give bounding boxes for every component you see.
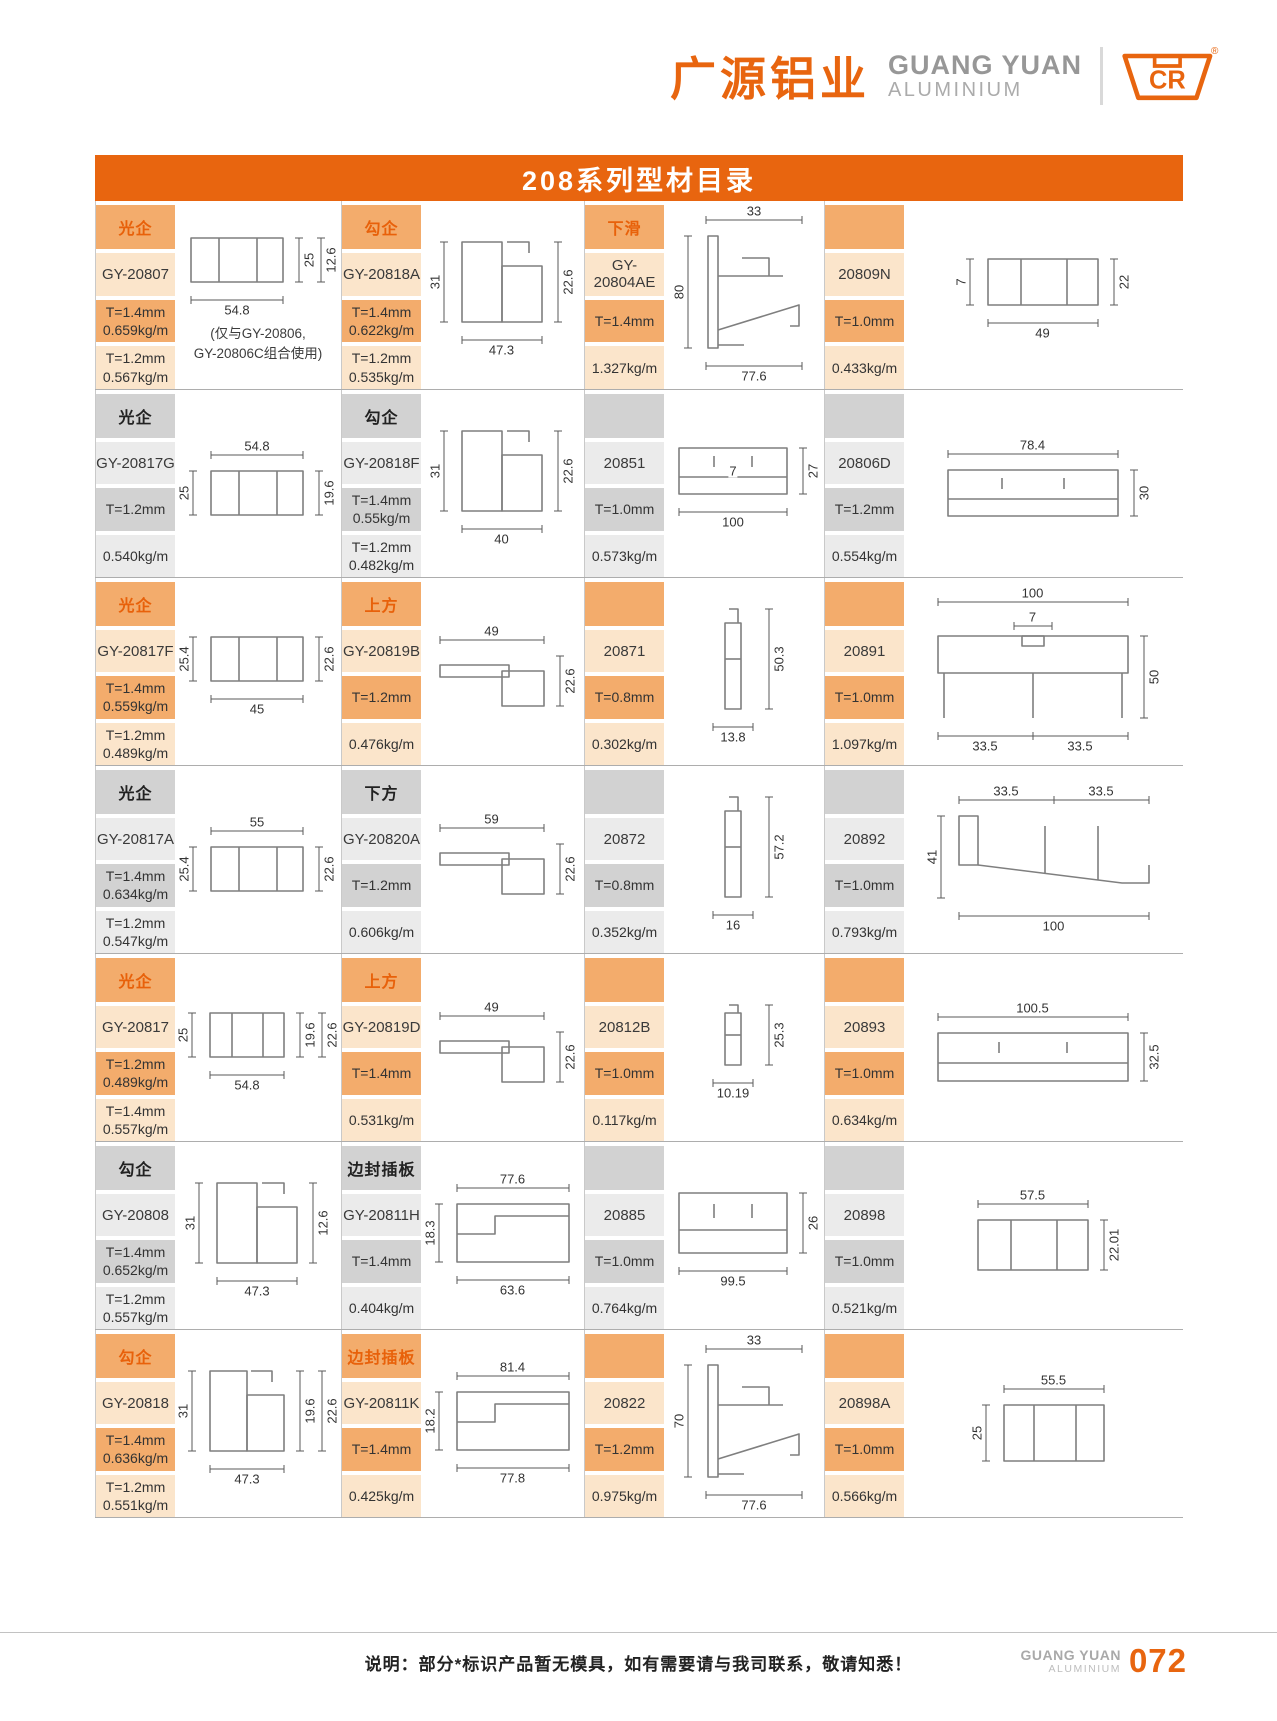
brand-english-name: GUANG YUAN ALUMINIUM (888, 51, 1082, 102)
dimension-label: 41 (925, 848, 938, 864)
profile-type-label (825, 205, 904, 249)
dimension-label: 49 (483, 624, 499, 637)
profile-spec-primary: T=1.2mm (342, 676, 421, 718)
profile-drawing-cell: 77.663.618.3 (421, 1142, 584, 1329)
dimension-label: 18.3 (423, 1219, 436, 1246)
profile-spec-secondary: 0.117kg/m (585, 1099, 664, 1141)
profile-cross-section: 4922.6 (426, 624, 580, 720)
profile-spec-primary: T=1.0mm (825, 300, 904, 343)
profile-spec-secondary: T=1.2mm 0.547kg/m (96, 911, 175, 953)
profile-cross-section: 5922.6 (426, 812, 580, 908)
dimension-label: 54.8 (233, 1078, 260, 1091)
dimension-label: 47.3 (243, 1284, 270, 1297)
profile-drawing-cell: 99.526 (664, 1142, 824, 1329)
profile-code: GY-20818F (342, 442, 421, 484)
profile-spec-primary: T=1.4mm 0.55kg/m (342, 488, 421, 530)
profile-drawing-cell: 100277 (664, 390, 824, 577)
profile-info-column: 20898T=1.0mm0.521kg/m (824, 1142, 904, 1329)
dimension-label: 100 (1021, 586, 1045, 599)
dimension-label: 40 (493, 532, 509, 545)
profile-drawing-cell: 3377.670 (664, 1330, 824, 1517)
profile-drawing-cell: 3377.680 (664, 201, 824, 389)
profile-drawing-cell: 4525.422.6 (175, 578, 341, 765)
profile-drawing-cell: 100.532.5 (904, 954, 1183, 1141)
profile-drawing-cell: 10.1925.3 (664, 954, 824, 1141)
profile-cross-section: 5525.422.6 (177, 815, 339, 905)
profile-spec-primary: T=1.4mm 0.622kg/m (342, 300, 421, 343)
dimension-label: 10.19 (716, 1086, 751, 1099)
dimension-label: 50 (1147, 668, 1160, 684)
profile-cross-section: 4922.6 (426, 1000, 580, 1096)
dimension-label: 33.5 (971, 739, 998, 752)
dimension-label: 25.4 (178, 645, 191, 672)
profile-code: GY-20804AE (585, 253, 664, 296)
profile-cross-section: 47.33122.6 (428, 230, 578, 360)
profile-info-column: 20872T=0.8mm0.352kg/m (584, 766, 664, 953)
dimension-label: 99.5 (719, 1274, 746, 1287)
dimension-label: 49 (1034, 327, 1050, 340)
profile-type-label: 光企 (96, 770, 175, 814)
dimension-label: 25.3 (773, 1021, 786, 1048)
profile-drawing-cell: 54.82512.6(仅与GY-20806, GY-20806C组合使用) (175, 201, 341, 389)
catalog-row: 光企GY-20817AT=1.4mm 0.634kg/mT=1.2mm 0.54… (95, 765, 1183, 953)
profile-code: 20851 (585, 442, 664, 484)
profile-spec-primary: T=1.2mm (825, 488, 904, 530)
profile-cross-section: 54.82512.6 (177, 226, 339, 320)
dimension-label: 25 (303, 252, 316, 268)
profile-type-label: 勾企 (342, 394, 421, 438)
dimension-label: 31 (428, 462, 441, 478)
profile-type-label (585, 770, 664, 814)
profile-cross-section: 100277 (665, 436, 823, 532)
footer-brand: GUANG YUAN ALUMINIUM (1021, 1647, 1121, 1675)
profile-type-label: 下方 (342, 770, 421, 814)
profile-info-column: 20871T=0.8mm0.302kg/m (584, 578, 664, 765)
profile-info-column: 勾企GY-20808T=1.4mm 0.652kg/mT=1.2mm 0.557… (95, 1142, 175, 1329)
dimension-label: 30 (1137, 484, 1150, 500)
profile-info-column: 上方GY-20819BT=1.2mm0.476kg/m (341, 578, 421, 765)
dimension-label: 27 (807, 462, 820, 478)
profile-type-label: 边封插板 (342, 1334, 421, 1378)
dimension-label: 100.5 (1015, 1001, 1050, 1014)
profile-info-column: 上方GY-20819DT=1.4mm0.531kg/m (341, 954, 421, 1141)
profile-spec-primary: T=1.2mm (342, 864, 421, 906)
dimension-label: 22.6 (563, 855, 576, 882)
profile-spec-primary: T=1.0mm (585, 1052, 664, 1094)
profile-info-column: 下滑GY-20804AET=1.4mm1.327kg/m (584, 201, 664, 389)
profile-cross-section: 54.82519.6 (177, 439, 339, 529)
dimension-label: 31 (177, 1402, 190, 1418)
catalog-title: 208系列型材目录 (95, 155, 1183, 201)
profile-drawing-cell: 4922.6 (421, 578, 584, 765)
profile-info-column: 勾企GY-20818AT=1.4mm 0.622kg/mT=1.2mm 0.53… (341, 201, 421, 389)
profile-cross-section: 3377.680 (672, 204, 816, 386)
profile-code: 20872 (585, 818, 664, 860)
profile-info-column: 20822T=1.2mm0.975kg/m (584, 1330, 664, 1517)
profile-spec-secondary: 0.975kg/m (585, 1475, 664, 1517)
profile-type-label: 光企 (96, 582, 175, 626)
profile-spec-secondary: T=1.2mm 0.489kg/m (96, 723, 175, 765)
catalog-row: 光企GY-20807T=1.4mm 0.659kg/mT=1.2mm 0.567… (95, 201, 1183, 389)
profile-spec-primary: T=1.4mm (342, 1240, 421, 1282)
profile-spec-secondary: T=1.2mm 0.567kg/m (96, 346, 175, 389)
profile-code: GY-20819D (342, 1006, 421, 1048)
profile-info-column: 光企GY-20817AT=1.4mm 0.634kg/mT=1.2mm 0.54… (95, 766, 175, 953)
dimension-label: 16 (725, 918, 741, 931)
brand-english-main: GUANG YUAN (888, 51, 1082, 80)
profile-type-label: 光企 (96, 205, 175, 249)
profile-type-label: 上方 (342, 958, 421, 1002)
profile-spec-secondary: 0.540kg/m (96, 535, 175, 577)
profile-drawing-cell: 47.33122.6 (421, 201, 584, 389)
dimension-label: 47.3 (233, 1472, 260, 1485)
profile-spec-secondary: 0.793kg/m (825, 911, 904, 953)
profile-code: 20892 (825, 818, 904, 860)
dimension-label: 77.8 (499, 1471, 526, 1484)
profile-spec-secondary: 1.327kg/m (585, 346, 664, 389)
profile-cross-section: 33.533.510041 (925, 784, 1163, 936)
dimension-label: 100 (1042, 919, 1066, 932)
profile-cross-section: 1657.2 (699, 785, 789, 935)
logo-letters: CR (1149, 67, 1186, 95)
profile-cross-section: 3377.670 (672, 1333, 816, 1515)
dimension-label: 33 (746, 1333, 762, 1346)
profile-code: 20891 (825, 630, 904, 672)
dimension-label: 54.8 (223, 304, 250, 317)
profile-cross-section: 55.525 (970, 1373, 1118, 1475)
catalog-content: 208系列型材目录 光企GY-20807T=1.4mm 0.659kg/mT=1… (95, 155, 1183, 1518)
profile-info-column: 20885T=1.0mm0.764kg/m (584, 1142, 664, 1329)
profile-spec-primary: T=1.0mm (825, 1240, 904, 1282)
profile-drawing-cell: 54.82519.622.6 (175, 954, 341, 1141)
profile-type-label: 勾企 (342, 205, 421, 249)
dimension-label: 26 (807, 1214, 820, 1230)
profile-spec-secondary: 0.302kg/m (585, 723, 664, 765)
profile-drawing-cell: 100733.533.550 (904, 578, 1183, 765)
dimension-label: 19.6 (304, 1397, 317, 1424)
page-number-block: GUANG YUAN ALUMINIUM 072 (1021, 1642, 1187, 1680)
profile-spec-secondary: T=1.2mm 0.557kg/m (96, 1287, 175, 1329)
profile-drawing-cell: 49722 (904, 201, 1183, 389)
profile-code: GY-20811H (342, 1194, 421, 1236)
dimension-label: 12.6 (317, 1209, 330, 1236)
profile-type-label (825, 770, 904, 814)
profile-drawing-cell: 1657.2 (664, 766, 824, 953)
profile-type-label (825, 958, 904, 1002)
profile-spec-primary: T=1.0mm (825, 1052, 904, 1094)
profile-spec-secondary: T=1.2mm 0.551kg/m (96, 1475, 175, 1517)
profile-drawing-cell: 81.477.818.2 (421, 1330, 584, 1517)
profile-spec-primary: T=1.4mm 0.636kg/m (96, 1428, 175, 1470)
profile-spec-primary: T=1.0mm (825, 1428, 904, 1470)
profile-info-column: 20851T=1.0mm0.573kg/m (584, 390, 664, 577)
profile-drawing-cell: 403122.6 (421, 390, 584, 577)
profile-type-label: 勾企 (96, 1334, 175, 1378)
profile-cross-section: 4525.422.6 (177, 625, 339, 719)
dimension-label: 22.6 (326, 1021, 339, 1048)
profile-cross-section: 403122.6 (428, 419, 578, 549)
profile-info-column: 边封插板GY-20811HT=1.4mm0.404kg/m (341, 1142, 421, 1329)
profile-spec-secondary: 0.764kg/m (585, 1287, 664, 1329)
usage-note: (仅与GY-20806, GY-20806C组合使用) (194, 324, 323, 363)
dimension-label: 77.6 (740, 1498, 767, 1511)
dimension-label: 100 (721, 515, 745, 528)
dimension-label: 33.5 (1066, 739, 1093, 752)
dimension-label: 22.01 (1107, 1227, 1120, 1262)
profile-spec-secondary: 0.566kg/m (825, 1475, 904, 1517)
profile-drawing-cell: 5525.422.6 (175, 766, 341, 953)
profile-code: 20871 (585, 630, 664, 672)
dimension-label: 49 (483, 1000, 499, 1013)
dimension-label: 22.6 (323, 855, 336, 882)
dimension-label: 25.4 (178, 855, 191, 882)
catalog-row: 光企GY-20817T=1.2mm 0.489kg/mT=1.4mm 0.557… (95, 953, 1183, 1141)
dimension-label: 19.6 (323, 479, 336, 506)
profile-info-column: 20812BT=1.0mm0.117kg/m (584, 954, 664, 1141)
profile-cross-section: 77.663.618.3 (423, 1172, 583, 1300)
profile-spec-secondary: 0.521kg/m (825, 1287, 904, 1329)
profile-code: 20822 (585, 1382, 664, 1424)
profile-type-label (825, 1334, 904, 1378)
catalog-table: 光企GY-20807T=1.4mm 0.659kg/mT=1.2mm 0.567… (95, 201, 1183, 1518)
profile-drawing-cell: 78.430 (904, 390, 1183, 577)
profile-code: 20893 (825, 1006, 904, 1048)
dimension-label: 18.2 (423, 1407, 436, 1434)
profile-code: 20812B (585, 1006, 664, 1048)
profile-code: 20885 (585, 1194, 664, 1236)
profile-drawing-cell: 33.533.510041 (904, 766, 1183, 953)
dimension-label: 31 (428, 274, 441, 290)
profile-spec-secondary: 0.476kg/m (342, 723, 421, 765)
profile-cross-section: 78.430 (934, 438, 1154, 530)
profile-spec-secondary: 0.634kg/m (825, 1099, 904, 1141)
dimension-label: 22.6 (561, 457, 574, 484)
profile-code: GY-20820A (342, 818, 421, 860)
profile-spec-primary: T=0.8mm (585, 864, 664, 906)
dimension-label: 47.3 (488, 344, 515, 357)
catalog-row: 勾企GY-20808T=1.4mm 0.652kg/mT=1.2mm 0.557… (95, 1141, 1183, 1329)
profile-info-column: 光企GY-20817GT=1.2mm0.540kg/m (95, 390, 175, 577)
profile-drawing-cell: 54.82519.6 (175, 390, 341, 577)
brand-english-sub: ALUMINIUM (888, 80, 1082, 102)
profile-code: GY-20808 (96, 1194, 175, 1236)
profile-type-label (585, 582, 664, 626)
profile-drawing-cell: 47.33119.622.6 (175, 1330, 341, 1517)
dimension-label: 32.5 (1147, 1043, 1160, 1070)
profile-spec-secondary: T=1.4mm 0.557kg/m (96, 1099, 175, 1141)
profile-spec-secondary: 0.554kg/m (825, 535, 904, 577)
profile-code: GY-20811K (342, 1382, 421, 1424)
dimension-label: 7 (1028, 610, 1037, 623)
dimension-label: 45 (249, 702, 265, 715)
page-header: 广源铝业 GUANG YUAN ALUMINIUM CR ® (670, 42, 1221, 110)
profile-drawing-cell: 5922.6 (421, 766, 584, 953)
dimension-label: 33.5 (992, 784, 1019, 797)
header-divider (1100, 47, 1103, 105)
dimension-label: 55.5 (1040, 1373, 1067, 1386)
profile-spec-primary: T=1.2mm (96, 488, 175, 530)
profile-cross-section: 100733.533.550 (924, 588, 1164, 756)
company-logo-icon: CR ® (1121, 42, 1221, 110)
profile-cross-section: 47.33119.622.6 (176, 1359, 340, 1489)
profile-cross-section: 49722 (954, 247, 1134, 343)
profile-type-label (585, 1146, 664, 1190)
profile-spec-primary: T=1.4mm (342, 1052, 421, 1094)
profile-info-column: 20891T=1.0mm1.097kg/m (824, 578, 904, 765)
footer-brand-main: GUANG YUAN (1021, 1647, 1121, 1663)
footer-divider (0, 1632, 1277, 1633)
profile-drawing-cell: 47.33112.6 (175, 1142, 341, 1329)
profile-drawing-cell: 4922.6 (421, 954, 584, 1141)
dimension-label: 25 (177, 1026, 190, 1042)
dimension-label: 33 (746, 205, 762, 218)
profile-spec-primary: T=1.0mm (825, 864, 904, 906)
dimension-label: 57.5 (1019, 1188, 1046, 1201)
profile-code: GY-20817 (96, 1006, 175, 1048)
profile-spec-primary: T=1.0mm (585, 488, 664, 530)
dimension-label: 25 (970, 1424, 983, 1440)
dimension-label: 50.3 (773, 645, 786, 672)
profile-spec-secondary: 0.404kg/m (342, 1287, 421, 1329)
profile-info-column: 光企GY-20817T=1.2mm 0.489kg/mT=1.4mm 0.557… (95, 954, 175, 1141)
profile-code: 20809N (825, 253, 904, 296)
catalog-row: 勾企GY-20818T=1.4mm 0.636kg/mT=1.2mm 0.551… (95, 1329, 1183, 1517)
profile-code: 20898 (825, 1194, 904, 1236)
profile-cross-section: 57.522.01 (964, 1188, 1124, 1284)
profile-info-column: 勾企GY-20818T=1.4mm 0.636kg/mT=1.2mm 0.551… (95, 1330, 175, 1517)
profile-spec-secondary: 0.425kg/m (342, 1475, 421, 1517)
profile-drawing-cell: 13.850.3 (664, 578, 824, 765)
profile-cross-section: 81.477.818.2 (423, 1360, 583, 1488)
profile-spec-primary: T=1.4mm (342, 1428, 421, 1470)
dimension-label: 78.4 (1019, 438, 1046, 451)
dimension-label: 63.6 (499, 1283, 526, 1296)
profile-spec-secondary: 0.573kg/m (585, 535, 664, 577)
dimension-label: 7 (728, 465, 737, 478)
profile-spec-secondary: T=1.2mm 0.482kg/m (342, 535, 421, 577)
dimension-label: 22.6 (323, 645, 336, 672)
profile-code: 20806D (825, 442, 904, 484)
profile-info-column: 20898AT=1.0mm0.566kg/m (824, 1330, 904, 1517)
footer-brand-sub: ALUMINIUM (1049, 1663, 1121, 1675)
profile-code: GY-20819B (342, 630, 421, 672)
profile-drawing-cell: 57.522.01 (904, 1142, 1183, 1329)
dimension-label: 22.6 (563, 667, 576, 694)
profile-code: GY-20818A (342, 253, 421, 296)
dimension-label: 19.6 (304, 1021, 317, 1048)
dimension-label: 22 (1117, 274, 1130, 290)
profile-type-label (825, 1146, 904, 1190)
profile-spec-primary: T=1.4mm 0.634kg/m (96, 864, 175, 906)
profile-info-column: 20893T=1.0mm0.634kg/m (824, 954, 904, 1141)
brand-chinese-name: 广源铝业 (670, 43, 870, 109)
dimension-label: 12.6 (325, 247, 338, 274)
profile-spec-secondary: 1.097kg/m (825, 723, 904, 765)
profile-spec-primary: T=1.4mm (585, 300, 664, 343)
dimension-label: 57.2 (773, 833, 786, 860)
profile-type-label (825, 394, 904, 438)
dimension-label: 22.6 (563, 1043, 576, 1070)
profile-spec-secondary: 0.606kg/m (342, 911, 421, 953)
profile-spec-secondary: T=1.2mm 0.535kg/m (342, 346, 421, 389)
dimension-label: 7 (954, 277, 967, 286)
dimension-label: 22.6 (561, 268, 574, 295)
profile-cross-section: 10.1925.3 (699, 993, 789, 1103)
profile-code: GY-20818 (96, 1382, 175, 1424)
dimension-label: 31 (184, 1214, 197, 1230)
profile-spec-primary: T=1.0mm (825, 676, 904, 718)
dimension-label: 59 (483, 812, 499, 825)
profile-spec-primary: T=1.2mm 0.489kg/m (96, 1052, 175, 1094)
profile-spec-primary: T=1.4mm 0.652kg/m (96, 1240, 175, 1282)
profile-spec-secondary: 0.352kg/m (585, 911, 664, 953)
profile-info-column: 光企GY-20807T=1.4mm 0.659kg/mT=1.2mm 0.567… (95, 201, 175, 389)
profile-type-label: 上方 (342, 582, 421, 626)
registered-mark: ® (1211, 46, 1219, 57)
profile-type-label: 光企 (96, 958, 175, 1002)
profile-info-column: 20809NT=1.0mm0.433kg/m (824, 201, 904, 389)
dimension-label: 77.6 (499, 1172, 526, 1185)
profile-spec-secondary: 0.433kg/m (825, 346, 904, 389)
dimension-label: 80 (673, 284, 686, 300)
profile-cross-section: 99.526 (665, 1181, 823, 1291)
profile-spec-primary: T=1.0mm (585, 1240, 664, 1282)
dimension-label: 55 (249, 815, 265, 828)
profile-info-column: 20892T=1.0mm0.793kg/m (824, 766, 904, 953)
profile-info-column: 勾企GY-20818FT=1.4mm 0.55kg/mT=1.2mm 0.482… (341, 390, 421, 577)
profile-code: GY-20807 (96, 253, 175, 296)
dimension-label: 54.8 (243, 439, 270, 452)
dimension-label: 33.5 (1087, 784, 1114, 797)
profile-code: GY-20817F (96, 630, 175, 672)
dimension-label: 13.8 (719, 730, 746, 743)
dimension-label: 81.4 (499, 1360, 526, 1373)
profile-info-column: 下方GY-20820AT=1.2mm0.606kg/m (341, 766, 421, 953)
dimension-label: 25 (178, 484, 191, 500)
profile-cross-section: 54.82519.622.6 (176, 1001, 340, 1095)
profile-type-label (585, 958, 664, 1002)
profile-type-label (585, 1334, 664, 1378)
profile-drawing-cell: 55.525 (904, 1330, 1183, 1517)
profile-spec-secondary: 0.531kg/m (342, 1099, 421, 1141)
profile-spec-primary: T=1.2mm (585, 1428, 664, 1470)
dimension-label: 70 (673, 1412, 686, 1428)
profile-type-label (585, 394, 664, 438)
profile-cross-section: 100.532.5 (924, 1001, 1164, 1095)
catalog-row: 光企GY-20817FT=1.4mm 0.559kg/mT=1.2mm 0.48… (95, 577, 1183, 765)
catalog-row: 光企GY-20817GT=1.2mm0.540kg/m54.82519.6勾企G… (95, 389, 1183, 577)
profile-info-column: 20806DT=1.2mm0.554kg/m (824, 390, 904, 577)
profile-spec-primary: T=0.8mm (585, 676, 664, 718)
profile-code: 20898A (825, 1382, 904, 1424)
profile-cross-section: 47.33112.6 (183, 1171, 333, 1301)
profile-spec-primary: T=1.4mm 0.559kg/m (96, 676, 175, 718)
page-number: 072 (1129, 1642, 1187, 1680)
profile-cross-section: 13.850.3 (699, 597, 789, 747)
dimension-label: 22.6 (326, 1397, 339, 1424)
profile-code: GY-20817A (96, 818, 175, 860)
dimension-label: 77.6 (740, 370, 767, 383)
profile-code: GY-20817G (96, 442, 175, 484)
profile-type-label: 勾企 (96, 1146, 175, 1190)
profile-spec-primary: T=1.4mm 0.659kg/m (96, 300, 175, 343)
profile-info-column: 光企GY-20817FT=1.4mm 0.559kg/mT=1.2mm 0.48… (95, 578, 175, 765)
profile-type-label: 边封插板 (342, 1146, 421, 1190)
profile-info-column: 边封插板GY-20811KT=1.4mm0.425kg/m (341, 1330, 421, 1517)
profile-type-label (825, 582, 904, 626)
profile-type-label: 下滑 (585, 205, 664, 249)
profile-type-label: 光企 (96, 394, 175, 438)
